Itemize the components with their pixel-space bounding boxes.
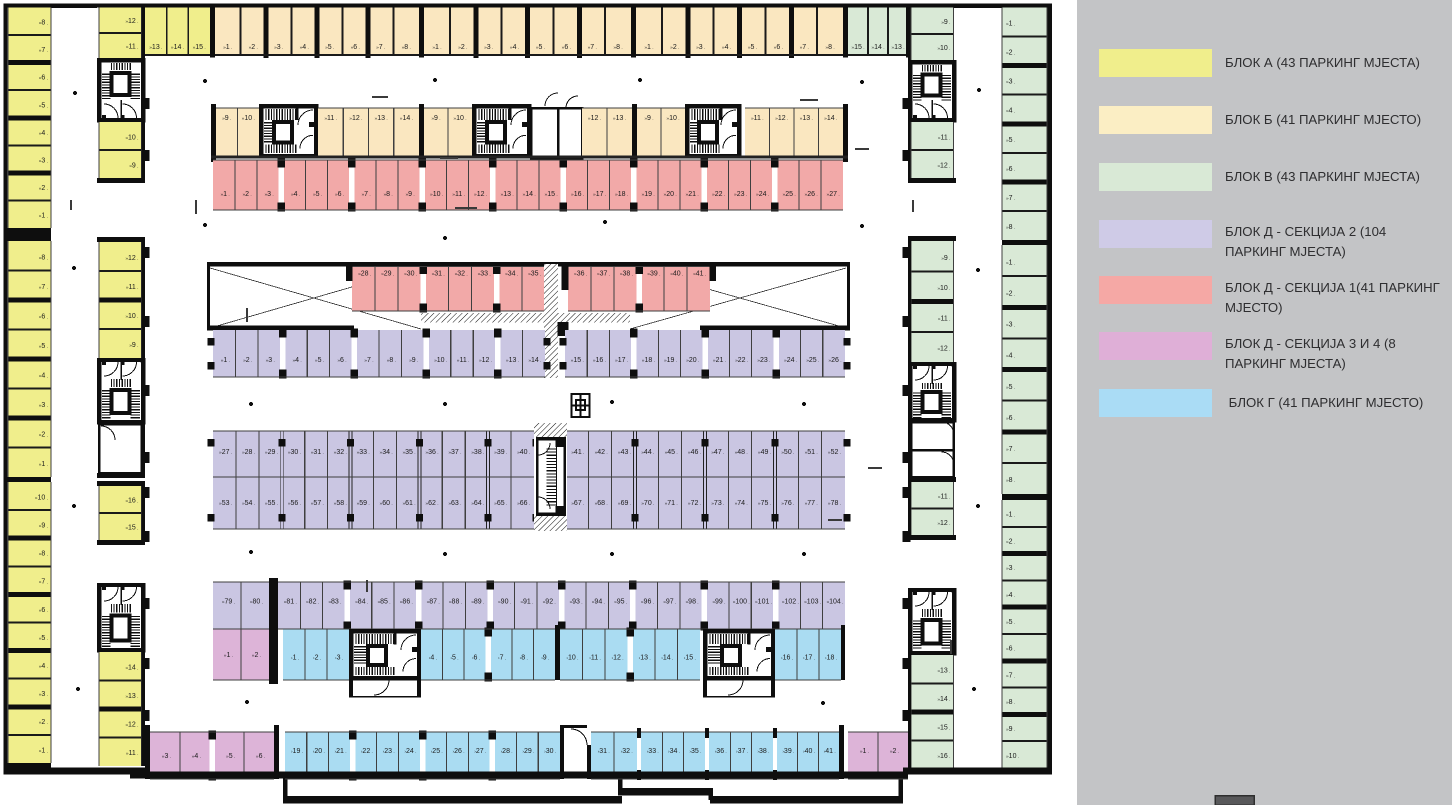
svg-text:»8 .: »8 . [825, 44, 834, 51]
svg-text:›6 .: ›6 . [472, 655, 480, 662]
svg-text:»10 .: »10 . [35, 494, 48, 501]
svg-text:›33 .: ›33 . [647, 748, 659, 755]
svg-text:»11 .: »11 . [452, 191, 465, 198]
svg-text:»94 .: »94 . [592, 599, 605, 606]
svg-text:»14 .: »14 . [824, 115, 837, 122]
svg-text:»8 .: »8 . [387, 357, 396, 364]
svg-text:»8 .: »8 . [383, 191, 392, 198]
svg-text:»8 .: »8 . [613, 44, 622, 51]
svg-text:›26 .: ›26 . [452, 748, 464, 755]
svg-text:›2 .: ›2 . [313, 655, 321, 662]
svg-text:»70 .: »70 . [641, 500, 654, 507]
svg-text:›41 .: ›41 . [824, 748, 836, 755]
svg-text:›19 .: ›19 . [291, 748, 303, 755]
svg-text:»90 .: »90 . [498, 599, 511, 606]
svg-text:»52 .: »52 . [828, 449, 841, 456]
svg-text:»42 .: »42 . [595, 449, 608, 456]
svg-text:»7 .: »7 . [364, 357, 373, 364]
svg-text:»29 .: »29 . [265, 449, 278, 456]
svg-text:»53 .: »53 . [219, 500, 232, 507]
svg-text:»8 .: »8 . [39, 254, 48, 261]
svg-text:»26 .: »26 . [828, 357, 841, 364]
svg-text:»98 .: »98 . [686, 599, 699, 606]
svg-text:»8 .: »8 . [1006, 699, 1015, 706]
svg-text:»3 .: »3 . [274, 44, 283, 51]
svg-text:»13 .: »13 . [506, 357, 519, 364]
svg-text:»102 .: »102 . [782, 599, 799, 606]
svg-text:»72 .: »72 . [688, 500, 701, 507]
svg-text:»99 .: »99 . [712, 599, 725, 606]
svg-text:»2 .: »2 . [39, 431, 48, 438]
svg-text:»15 .: »15 . [545, 191, 558, 198]
svg-text:»21 .: »21 . [713, 357, 726, 364]
svg-text:»1 .: »1 . [432, 44, 441, 51]
svg-text:»8 .: »8 . [402, 44, 411, 51]
svg-text:»21 .: »21 . [686, 191, 699, 198]
svg-text:›5 .: ›5 . [450, 655, 458, 662]
svg-text:›27 .: ›27 . [474, 748, 486, 755]
svg-text:»10 .: »10 . [1006, 753, 1019, 760]
svg-text:»34 .: »34 . [505, 270, 518, 277]
svg-text:›14 .: ›14 . [661, 655, 673, 662]
svg-text:»6 .: »6 . [1006, 646, 1015, 653]
svg-text:БЛОК Д - СЕКЦИЈА 1(41 ПАРКИНГ: БЛОК Д - СЕКЦИЈА 1(41 ПАРКИНГ [1225, 280, 1440, 295]
svg-text:»14 .: »14 . [171, 44, 184, 51]
svg-text:»6 .: »6 . [1006, 415, 1015, 422]
svg-text:»68 .: »68 . [595, 500, 608, 507]
svg-text:»9 .: »9 . [941, 19, 950, 26]
svg-text:»78 .: »78 . [828, 500, 841, 507]
svg-text:»12 .: »12 . [349, 115, 362, 122]
svg-text:»10 .: »10 . [242, 115, 255, 122]
svg-text:»13 .: »13 . [800, 115, 813, 122]
svg-text:»10 .: »10 . [125, 134, 138, 141]
svg-text:»9 .: »9 . [431, 115, 440, 122]
svg-text:»1 .: »1 . [223, 44, 232, 51]
svg-text:»6 .: »6 . [1006, 166, 1015, 173]
svg-text:»40 .: »40 . [517, 449, 530, 456]
svg-text:»58 .: »58 . [334, 500, 347, 507]
svg-text:»5 .: »5 . [226, 753, 235, 760]
svg-text:»56 .: »56 . [288, 500, 301, 507]
svg-text:»11 .: »11 . [126, 43, 139, 50]
svg-text:›1 .: ›1 . [291, 655, 299, 662]
svg-text:»4 .: »4 . [1006, 108, 1015, 115]
svg-text:»5 .: »5 . [315, 357, 324, 364]
svg-text:»9 .: »9 . [941, 255, 950, 262]
svg-text:»12 .: »12 . [775, 115, 788, 122]
svg-text:»89 .: »89 . [471, 599, 484, 606]
svg-text:›38 .: ›38 . [757, 748, 769, 755]
svg-text:БЛОК В (43 ПАРКИНГ МЈЕСТА): БЛОК В (43 ПАРКИНГ МЈЕСТА) [1225, 169, 1420, 184]
svg-text:»10 .: »10 . [937, 45, 950, 52]
svg-text:»11 .: »11 . [126, 750, 139, 757]
svg-text:»4 .: »4 . [291, 191, 300, 198]
svg-text:»12 .: »12 . [125, 255, 138, 262]
svg-text:»7 .: »7 . [39, 579, 48, 586]
svg-text:»51 .: »51 . [805, 449, 818, 456]
svg-text:»17 .: »17 . [615, 357, 628, 364]
svg-text:»4 .: »4 . [39, 663, 48, 670]
svg-text:»10 .: »10 . [937, 285, 950, 292]
svg-text:»60 .: »60 . [380, 500, 393, 507]
svg-text:»14 .: »14 . [528, 357, 541, 364]
svg-text:»14 .: »14 . [871, 44, 884, 51]
svg-text:›29 .: ›29 . [522, 748, 534, 755]
svg-text:»5 .: »5 . [39, 635, 48, 642]
svg-text:»11 .: »11 . [938, 134, 951, 141]
svg-text:»15 .: »15 . [937, 725, 950, 732]
svg-text:»12 .: »12 . [474, 191, 487, 198]
svg-text:»12 .: »12 . [125, 18, 138, 25]
svg-text:»62 .: »62 . [425, 500, 438, 507]
svg-text:»48 .: »48 . [735, 449, 748, 456]
svg-text:»5 .: »5 . [325, 44, 334, 51]
svg-text:»101 .: »101 . [755, 599, 772, 606]
svg-text:»33 .: »33 . [357, 449, 370, 456]
svg-text:»20 .: »20 . [664, 191, 677, 198]
svg-text:»6 .: »6 . [774, 44, 783, 51]
svg-text:»2 .: »2 . [1006, 50, 1015, 57]
svg-text:»18 .: »18 . [642, 357, 655, 364]
svg-text:›15 .: ›15 . [684, 655, 696, 662]
svg-text:»2 .: »2 . [243, 357, 252, 364]
svg-text:»1 .: »1 . [1006, 21, 1015, 28]
svg-text:›17 .: ›17 . [803, 655, 815, 662]
svg-text:›12 .: ›12 . [612, 655, 624, 662]
svg-text:»16 .: »16 . [937, 753, 950, 760]
svg-text:»9 .: »9 . [129, 162, 138, 169]
svg-text:»33 .: »33 . [478, 270, 491, 277]
svg-text:БЛОК Д - СЕКЦИЈА 2 (104: БЛОК Д - СЕКЦИЈА 2 (104 [1225, 224, 1386, 239]
svg-text:»11 .: »11 . [324, 115, 337, 122]
svg-text:»7 .: »7 . [39, 284, 48, 291]
svg-text:БЛОК А (43 ПАРКИНГ МЈЕСТА): БЛОК А (43 ПАРКИНГ МЈЕСТА) [1225, 55, 1420, 70]
svg-text:›13 .: ›13 . [639, 655, 651, 662]
svg-text:»7 .: »7 . [1006, 672, 1015, 679]
svg-text:›28 .: ›28 . [501, 748, 513, 755]
svg-text:»3 .: »3 . [1006, 565, 1015, 572]
svg-text:»15 .: »15 . [125, 525, 138, 532]
svg-text:»9 .: »9 . [1006, 726, 1015, 733]
svg-text:»2 .: »2 . [39, 185, 48, 192]
svg-text:»22 .: »22 . [735, 357, 748, 364]
svg-text:»4 .: »4 . [510, 44, 519, 51]
svg-text:›11 .: ›11 . [589, 655, 601, 662]
svg-text:»5 .: »5 . [536, 44, 545, 51]
svg-text:ПАРКИНГ МЈЕСТА): ПАРКИНГ МЈЕСТА) [1225, 356, 1346, 371]
svg-text:»10 .: »10 . [125, 313, 138, 320]
svg-text:»32 .: »32 . [334, 449, 347, 456]
svg-text:»8 .: »8 . [1006, 224, 1015, 231]
svg-text:»39 .: »39 . [647, 270, 660, 277]
svg-text:»75 .: »75 . [758, 500, 771, 507]
svg-text:»16 .: »16 . [593, 357, 606, 364]
svg-text:»4 .: »4 . [292, 357, 301, 364]
svg-text:»77 .: »77 . [805, 500, 818, 507]
svg-text:»31 .: »31 . [432, 270, 445, 277]
svg-text:»9 .: »9 . [405, 191, 414, 198]
svg-text:›24 .: ›24 . [404, 748, 416, 755]
svg-text:»10 .: »10 . [430, 191, 443, 198]
svg-text:»86 .: »86 . [400, 599, 413, 606]
svg-text:»26 .: »26 . [805, 191, 818, 198]
svg-text:»57 .: »57 . [311, 500, 324, 507]
svg-text:»5 .: »5 . [1006, 137, 1015, 144]
svg-text:»12 .: »12 . [125, 722, 138, 729]
svg-text:»41 .: »41 . [693, 270, 706, 277]
svg-text:»46 .: »46 . [688, 449, 701, 456]
svg-text:»100 .: »100 . [733, 599, 750, 606]
svg-text:»11 .: »11 . [938, 315, 951, 322]
svg-text:»12 .: »12 . [937, 520, 950, 527]
svg-text:»55 .: »55 . [265, 500, 278, 507]
svg-text:»104 .: »104 . [826, 599, 843, 606]
svg-text:»5 .: »5 . [748, 44, 757, 51]
svg-text:»1 .: »1 . [860, 748, 869, 755]
svg-text:»13 .: »13 . [613, 115, 626, 122]
svg-text:»85 .: »85 . [377, 599, 390, 606]
svg-text:»1 .: »1 . [39, 461, 48, 468]
svg-text:»24 .: »24 . [756, 191, 769, 198]
svg-text:»9 .: »9 . [129, 342, 138, 349]
svg-text:»13 .: »13 . [501, 191, 514, 198]
svg-text:»103 .: »103 . [804, 599, 821, 606]
svg-text:»7 .: »7 . [1006, 446, 1015, 453]
svg-text:»28 .: »28 . [242, 449, 255, 456]
svg-text:›32 .: ›32 . [621, 748, 633, 755]
svg-text:»25 .: »25 . [806, 357, 819, 364]
svg-text:»69 .: »69 . [618, 500, 631, 507]
svg-text:»59 .: »59 . [357, 500, 370, 507]
svg-text:›7 .: ›7 . [498, 655, 506, 662]
svg-text:»80 .: »80 . [250, 599, 263, 606]
svg-text:»36 .: »36 . [574, 270, 587, 277]
svg-text:›30 .: ›30 . [544, 748, 556, 755]
svg-text:»9 .: »9 . [222, 115, 231, 122]
svg-text:»71 .: »71 . [665, 500, 678, 507]
svg-text:»50 .: »50 . [781, 449, 794, 456]
svg-text:»6 .: »6 . [562, 44, 571, 51]
svg-text:»87 .: »87 . [427, 599, 440, 606]
svg-text:»14 .: »14 . [400, 115, 413, 122]
svg-text:›20 .: ›20 . [313, 748, 325, 755]
svg-text:›31 .: ›31 . [598, 748, 610, 755]
svg-text:»40 .: »40 . [670, 270, 683, 277]
svg-text:»2 .: »2 . [1006, 538, 1015, 545]
svg-text:»22 .: »22 . [712, 191, 725, 198]
svg-text:»8 .: »8 . [39, 20, 48, 27]
svg-text:БЛОК Г (41 ПАРКИНГ МЈЕСТО): БЛОК Г (41 ПАРКИНГ МЈЕСТО) [1225, 395, 1423, 410]
svg-text:»2 .: »2 . [458, 44, 467, 51]
svg-text:»1 .: »1 . [39, 213, 48, 220]
svg-text:»17 .: »17 . [593, 191, 606, 198]
svg-text:»74 .: »74 . [735, 500, 748, 507]
svg-text:»37 .: »37 . [448, 449, 461, 456]
svg-text:»4 .: »4 . [300, 44, 309, 51]
svg-text:»82 .: »82 . [306, 599, 319, 606]
svg-text:›37 .: ›37 . [736, 748, 748, 755]
svg-text:»23 .: »23 . [734, 191, 747, 198]
svg-text:»6 .: »6 . [256, 753, 265, 760]
svg-text:»1 .: »1 . [221, 357, 230, 364]
svg-text:»12 .: »12 . [937, 162, 950, 169]
svg-text:»96 .: »96 . [641, 599, 654, 606]
svg-text:»11 .: »11 . [457, 357, 470, 364]
svg-text:»11 .: »11 . [751, 115, 764, 122]
svg-text:»8 .: »8 . [1006, 477, 1015, 484]
svg-text:»39 .: »39 . [494, 449, 507, 456]
svg-text:»76 .: »76 . [781, 500, 794, 507]
svg-text:»30 .: »30 . [288, 449, 301, 456]
svg-text:»92 .: »92 . [543, 599, 556, 606]
svg-text:»7 .: »7 . [376, 44, 385, 51]
svg-text:»93 .: »93 . [569, 599, 582, 606]
svg-text:»31 .: »31 . [311, 449, 324, 456]
svg-text:»4 .: »4 . [39, 130, 48, 137]
svg-text:»6 .: »6 . [337, 357, 346, 364]
svg-text:»8 .: »8 . [39, 551, 48, 558]
svg-text:»3 .: »3 . [162, 753, 171, 760]
svg-text:»12 .: »12 . [588, 115, 601, 122]
svg-text:»2 .: »2 . [249, 44, 258, 51]
svg-text:БЛОК Б (41 ПАРКИНГ МЈЕСТО): БЛОК Б (41 ПАРКИНГ МЈЕСТО) [1225, 112, 1421, 127]
svg-text:»3 .: »3 . [39, 157, 48, 164]
svg-text:»4 .: »4 . [192, 753, 201, 760]
svg-text:›39 .: ›39 . [782, 748, 794, 755]
svg-text:»1 .: »1 . [224, 652, 233, 659]
svg-text:»41 .: »41 . [571, 449, 584, 456]
svg-text:»44 .: »44 . [641, 449, 654, 456]
svg-text:»35 .: »35 . [528, 270, 541, 277]
svg-text:»25 .: »25 . [783, 191, 796, 198]
svg-text:»29 .: »29 . [381, 270, 394, 277]
svg-text:»9 .: »9 . [39, 523, 48, 530]
svg-text:»38 .: »38 . [620, 270, 633, 277]
svg-text:»3 .: »3 . [39, 402, 48, 409]
svg-text:»83 .: »83 . [328, 599, 341, 606]
svg-text:»54 .: »54 . [242, 500, 255, 507]
svg-text:›16 .: ›16 . [781, 655, 793, 662]
svg-text:»91 .: »91 . [520, 599, 533, 606]
svg-text:»13 .: »13 . [375, 115, 388, 122]
svg-text:»30 .: »30 . [404, 270, 417, 277]
svg-text:»61 .: »61 . [402, 500, 415, 507]
svg-text:»20 .: »20 . [686, 357, 699, 364]
svg-text:»1 .: »1 . [39, 747, 48, 754]
svg-text:»5 .: »5 . [1006, 619, 1015, 626]
svg-text:»7 .: »7 . [800, 44, 809, 51]
svg-text:»27 .: »27 . [827, 191, 840, 198]
svg-text:»49 .: »49 . [758, 449, 771, 456]
svg-text:»34 .: »34 . [380, 449, 393, 456]
svg-text:»36 .: »36 . [425, 449, 438, 456]
svg-text:»13 .: »13 . [937, 668, 950, 675]
svg-text:›3 .: ›3 . [335, 655, 343, 662]
svg-text:»14 .: »14 . [937, 696, 950, 703]
svg-text:»6 .: »6 . [39, 607, 48, 614]
svg-text:»7 .: »7 . [1006, 195, 1015, 202]
svg-text:»19 .: »19 . [642, 191, 655, 198]
svg-text:»2 .: »2 . [670, 44, 679, 51]
svg-text:БЛОК Д - СЕКЦИЈА 3 И 4 (8: БЛОК Д - СЕКЦИЈА 3 И 4 (8 [1225, 336, 1396, 351]
svg-text:»3 .: »3 . [266, 357, 275, 364]
svg-text:»12 .: »12 . [479, 357, 492, 364]
svg-text:»3 .: »3 . [264, 191, 273, 198]
svg-text:»97 .: »97 . [663, 599, 676, 606]
svg-text:»81 .: »81 . [284, 599, 297, 606]
svg-text:»4 .: »4 . [722, 44, 731, 51]
svg-text:»4 .: »4 . [1006, 353, 1015, 360]
svg-text:»1 .: »1 . [1006, 512, 1015, 519]
svg-text:»6 .: »6 . [39, 75, 48, 82]
svg-text:»4 .: »4 . [1006, 592, 1015, 599]
svg-text:»4 .: »4 . [39, 372, 48, 379]
svg-text:»11 .: »11 . [938, 493, 951, 500]
svg-text:»88 .: »88 . [449, 599, 462, 606]
svg-text:»6 .: »6 . [351, 44, 360, 51]
svg-text:»2 .: »2 . [242, 191, 251, 198]
svg-text:»9 .: »9 . [644, 115, 653, 122]
svg-text:›23 .: ›23 . [383, 748, 395, 755]
svg-text:›8 .: ›8 . [520, 655, 528, 662]
svg-text:»5 .: »5 . [313, 191, 322, 198]
svg-text:»16 .: »16 . [125, 498, 138, 505]
svg-text:»38 .: »38 . [471, 449, 484, 456]
svg-text:»15 .: »15 . [193, 44, 206, 51]
svg-text:»45 .: »45 . [665, 449, 678, 456]
svg-text:»13 .: »13 . [149, 44, 162, 51]
svg-text:»14 .: »14 . [125, 665, 138, 672]
svg-text:»15 .: »15 . [851, 44, 864, 51]
svg-text:»2 .: »2 . [1006, 290, 1015, 297]
svg-text:»12 .: »12 . [937, 346, 950, 353]
svg-text:»79 .: »79 . [222, 599, 235, 606]
svg-text:»6 .: »6 . [335, 191, 344, 198]
svg-text:»65 .: »65 . [494, 500, 507, 507]
svg-text:»18 .: »18 . [615, 191, 628, 198]
svg-text:»95 .: »95 . [614, 599, 627, 606]
svg-text:»28 .: »28 . [358, 270, 371, 277]
svg-text:»43 .: »43 . [618, 449, 631, 456]
svg-text:»27 .: »27 . [219, 449, 232, 456]
svg-text:»15 .: »15 . [571, 357, 584, 364]
svg-text:»6 .: »6 . [39, 313, 48, 320]
svg-text:›25 .: ›25 . [431, 748, 443, 755]
svg-text:»32 .: »32 . [455, 270, 468, 277]
svg-text:»2 .: »2 . [39, 719, 48, 726]
svg-text:»5 .: »5 . [39, 102, 48, 109]
svg-text:»9 .: »9 . [409, 357, 418, 364]
svg-text:»84 .: »84 . [355, 599, 368, 606]
svg-text:»10 .: »10 . [666, 115, 679, 122]
svg-text:›21 .: ›21 . [335, 748, 347, 755]
svg-text:›40 .: ›40 . [803, 748, 815, 755]
svg-text:»2 .: »2 . [890, 748, 899, 755]
svg-text:»16 .: »16 . [571, 191, 584, 198]
svg-text:»7 .: »7 . [39, 47, 48, 54]
svg-text:МЈЕСТО): МЈЕСТО) [1225, 300, 1283, 315]
svg-text:»19 .: »19 . [664, 357, 677, 364]
svg-text:»10 .: »10 . [434, 357, 447, 364]
svg-text:»73 .: »73 . [711, 500, 724, 507]
svg-text:›36 .: ›36 . [715, 748, 727, 755]
svg-text:»64 .: »64 . [471, 500, 484, 507]
svg-text:›35 .: ›35 . [689, 748, 701, 755]
svg-text:›4 .: ›4 . [429, 655, 437, 662]
svg-text:»11 .: »11 . [126, 284, 139, 291]
svg-text:»2 .: »2 . [252, 652, 261, 659]
